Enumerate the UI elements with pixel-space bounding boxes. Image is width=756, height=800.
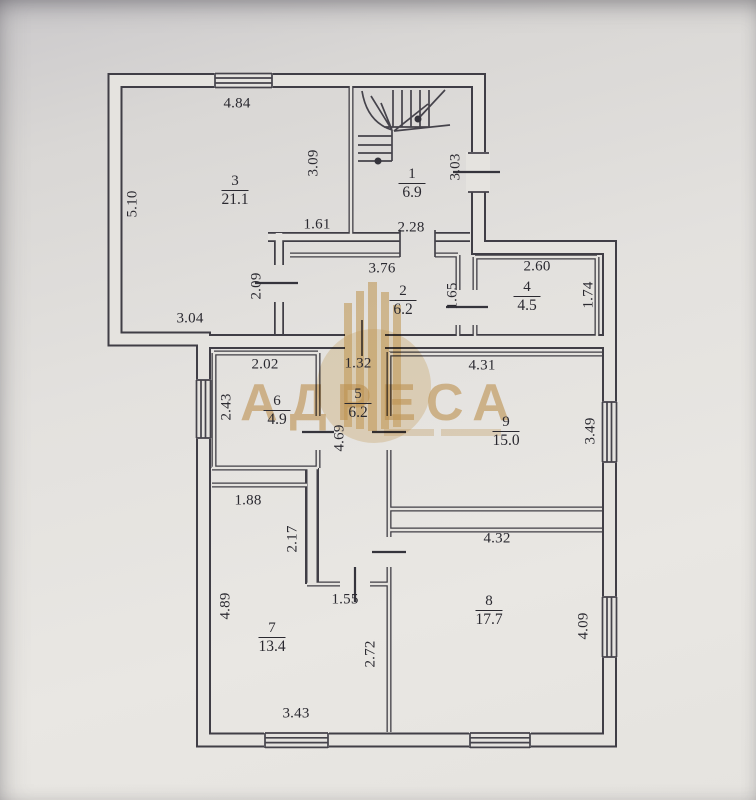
dim-room3-step: 1.61 xyxy=(303,218,330,233)
room-area: 15.0 xyxy=(492,434,521,448)
room-label-5: 5 6.2 xyxy=(344,388,373,420)
room-area: 6.9 xyxy=(398,186,427,200)
room-number: 2 xyxy=(389,285,418,298)
room-area: 13.4 xyxy=(258,640,287,654)
dim-room6-left: 2.43 xyxy=(220,393,235,420)
dim-room4-right: 1.74 xyxy=(582,281,597,308)
room-area: 21.1 xyxy=(221,193,250,207)
dim-room3-bottom: 3.04 xyxy=(176,312,203,327)
dim-room5-left: 4.69 xyxy=(333,424,348,451)
dim-room3-left: 5.10 xyxy=(126,190,141,217)
room-area: 6.2 xyxy=(344,406,373,420)
room-number: 4 xyxy=(513,281,542,294)
room-area: 4.5 xyxy=(513,299,542,313)
dim-room7-bottom: 3.43 xyxy=(282,707,309,722)
room-number: 8 xyxy=(475,595,504,608)
dim-room1-width: 2.28 xyxy=(397,221,424,236)
dim-room4-top: 2.60 xyxy=(523,260,550,275)
dim-room9-top: 4.31 xyxy=(468,359,495,374)
room-number: 5 xyxy=(344,388,373,401)
dim-room7-left: 4.89 xyxy=(219,592,234,619)
room-number: 6 xyxy=(263,395,292,408)
room-number: 7 xyxy=(258,622,287,635)
room-label-6: 6 4.9 xyxy=(263,395,292,427)
dim-room2-right: 1.65 xyxy=(446,282,461,309)
dim-room8-top: 4.32 xyxy=(483,532,510,547)
floor-plan-photo: АДРЕСА 4.84 5.10 3.09 1.61 3.04 2.09 2.2… xyxy=(0,0,756,800)
room-label-9: 9 15.0 xyxy=(492,416,521,448)
dim-room3-right: 3.09 xyxy=(307,149,322,176)
room-label-2: 2 6.2 xyxy=(389,285,418,317)
dim-room8-right: 4.09 xyxy=(577,612,592,639)
room-number: 1 xyxy=(398,168,427,181)
stair-newel-dot xyxy=(375,158,382,165)
dim-room7-right: 2.72 xyxy=(364,640,379,667)
room-number: 3 xyxy=(221,175,250,188)
room-area: 17.7 xyxy=(475,613,504,627)
dim-room7-notch: 2.17 xyxy=(286,525,301,552)
room-number: 9 xyxy=(492,416,521,429)
dim-room1-right: 3.03 xyxy=(449,153,464,180)
room-label-8: 8 17.7 xyxy=(475,595,504,627)
room-area: 4.9 xyxy=(263,413,292,427)
room-label-3: 3 21.1 xyxy=(221,175,250,207)
dim-room3-top: 4.84 xyxy=(223,97,250,112)
floorplan-drawing xyxy=(0,0,756,800)
room-label-1: 1 6.9 xyxy=(398,168,427,200)
staircase-symbol xyxy=(358,90,450,165)
dim-room3-notch: 2.09 xyxy=(250,272,265,299)
dim-room9-right: 3.49 xyxy=(584,417,599,444)
dim-room7-top: 1.88 xyxy=(234,494,261,509)
room-label-7: 7 13.4 xyxy=(258,622,287,654)
dim-room2-top: 3.76 xyxy=(368,262,395,277)
dim-room6-top: 2.02 xyxy=(251,358,278,373)
room-area: 6.2 xyxy=(389,303,418,317)
dim-room5-top: 1.32 xyxy=(344,357,371,372)
room-label-4: 4 4.5 xyxy=(513,281,542,313)
dim-room7-mid: 1.55 xyxy=(331,593,358,608)
stair-turn-dot xyxy=(415,116,422,123)
